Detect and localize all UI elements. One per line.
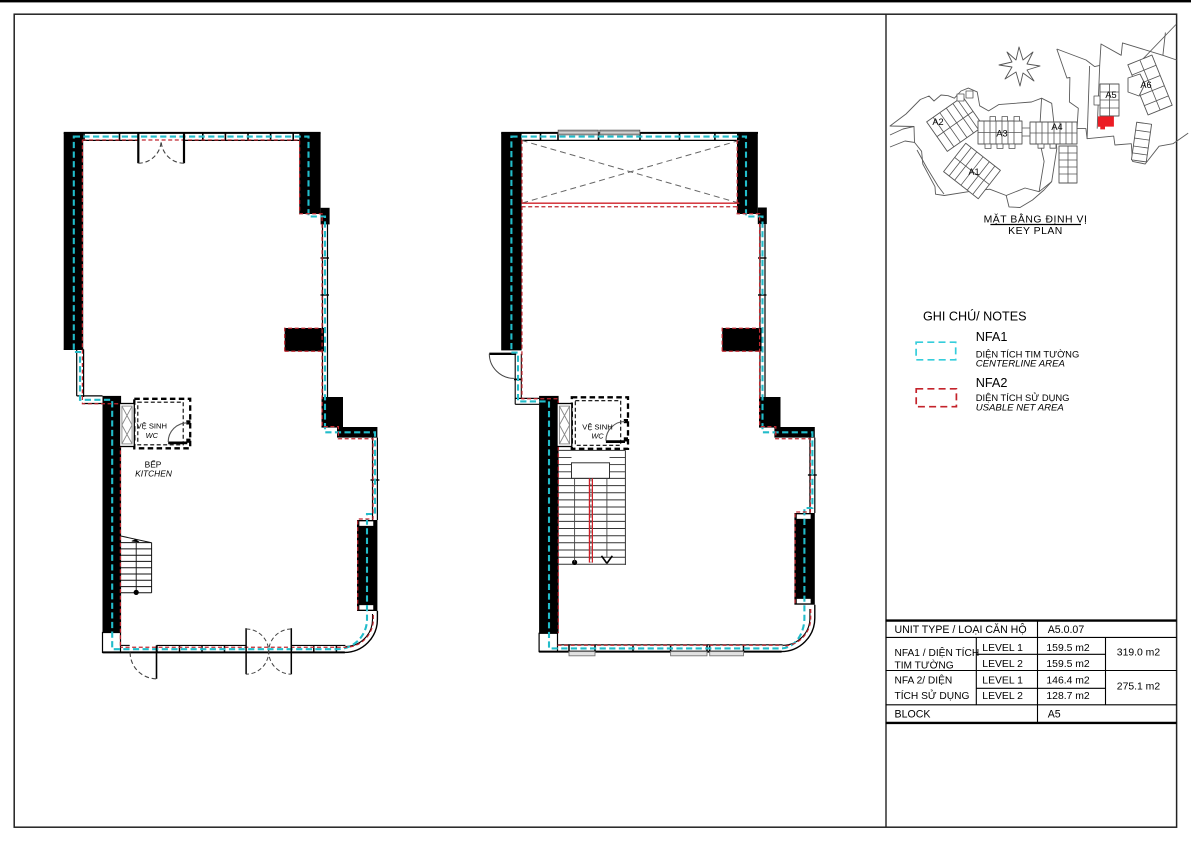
svg-text:NFA1 / DIỆN TÍCH: NFA1 / DIỆN TÍCH — [895, 646, 980, 659]
svg-text:A5: A5 — [1048, 708, 1061, 720]
svg-text:GHI CHÚ/ NOTES: GHI CHÚ/ NOTES — [923, 309, 1027, 324]
svg-text:USABLE NET AREA: USABLE NET AREA — [976, 402, 1064, 413]
svg-text:A5.0.07: A5.0.07 — [1048, 624, 1085, 636]
svg-text:BLOCK: BLOCK — [895, 708, 931, 720]
svg-text:A2: A2 — [932, 117, 943, 127]
svg-text:TÍCH SỬ DỤNG: TÍCH SỬ DỤNG — [895, 689, 970, 702]
svg-text:A3: A3 — [996, 129, 1007, 139]
svg-text:WC: WC — [146, 431, 159, 440]
svg-text:KITCHEN: KITCHEN — [135, 469, 173, 479]
svg-text:LEVEL 2: LEVEL 2 — [982, 659, 1023, 670]
svg-text:LEVEL 2: LEVEL 2 — [982, 691, 1023, 702]
svg-text:LEVEL 1: LEVEL 1 — [982, 675, 1023, 686]
svg-text:LEVEL 1: LEVEL 1 — [982, 643, 1023, 654]
svg-text:A4: A4 — [1051, 122, 1062, 132]
svg-text:A1: A1 — [968, 167, 979, 177]
svg-text:NFA1: NFA1 — [976, 330, 1008, 344]
svg-text:VỆ SINH: VỆ SINH — [137, 422, 167, 431]
svg-text:UNIT TYPE / LOẠI CĂN HỘ: UNIT TYPE / LOẠI CĂN HỘ — [895, 623, 1027, 636]
svg-text:275.1 m2: 275.1 m2 — [1117, 682, 1161, 693]
svg-text:159.5 m2: 159.5 m2 — [1046, 643, 1090, 654]
svg-text:319.0 m2: 319.0 m2 — [1117, 648, 1161, 659]
svg-text:NFA2: NFA2 — [976, 376, 1008, 390]
svg-text:NFA 2/ DIỆN: NFA 2/ DIỆN — [895, 673, 953, 686]
svg-text:KEY PLAN: KEY PLAN — [1008, 226, 1063, 237]
svg-text:CENTERLINE AREA: CENTERLINE AREA — [976, 359, 1065, 370]
svg-text:VỆ SINH: VỆ SINH — [582, 423, 612, 432]
svg-text:A5: A5 — [1105, 90, 1116, 100]
svg-text:TIM TƯỜNG: TIM TƯỜNG — [895, 659, 954, 672]
svg-text:159.5 m2: 159.5 m2 — [1046, 659, 1090, 670]
svg-text:146.4 m2: 146.4 m2 — [1046, 675, 1090, 686]
svg-text:WC: WC — [591, 431, 604, 440]
svg-text:128.7 m2: 128.7 m2 — [1046, 691, 1090, 702]
svg-text:MẶT BẰNG ĐỊNH VỊ: MẶT BẰNG ĐỊNH VỊ — [984, 212, 1088, 225]
svg-text:A6: A6 — [1140, 80, 1151, 90]
